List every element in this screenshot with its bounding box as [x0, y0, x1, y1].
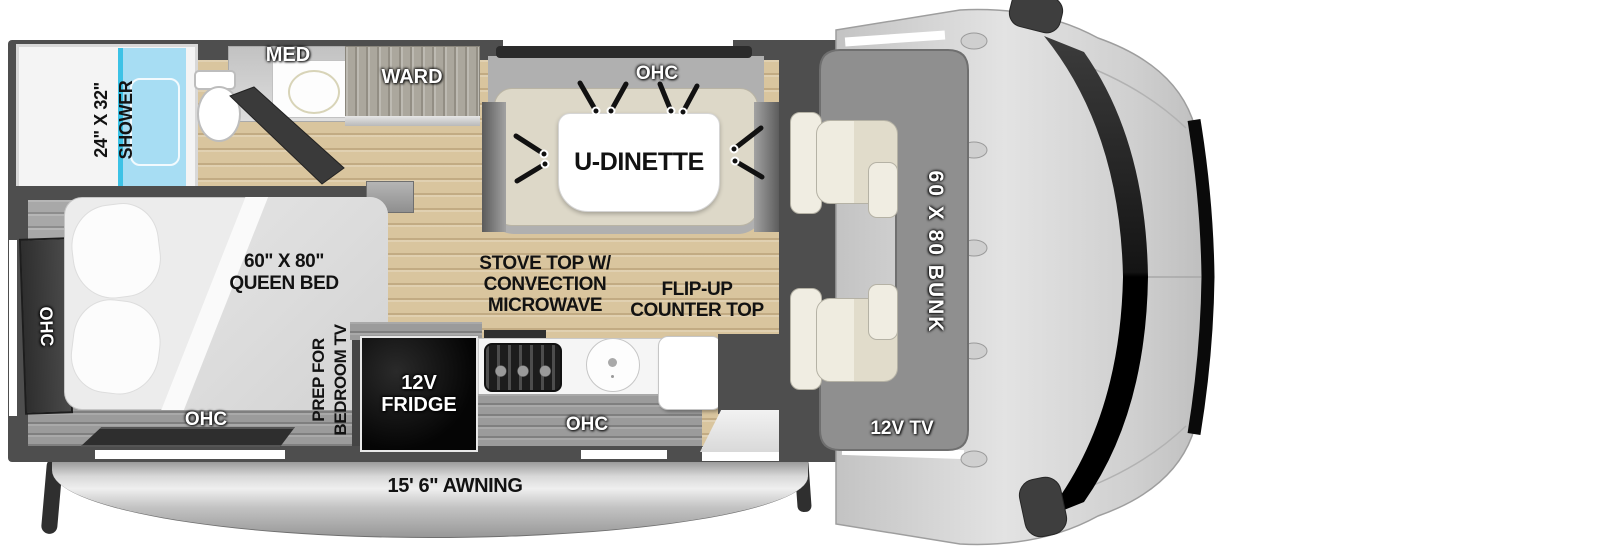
rear-side-window: [9, 240, 17, 416]
cab-and-bunk: [0, 0, 1600, 554]
driver-seat-armrest: [868, 284, 898, 340]
dinette-top-window: [503, 38, 733, 46]
kitchen-window: [581, 450, 667, 459]
bunk-label: 60 X 80 BUNK: [914, 67, 956, 437]
bedroom-window: [95, 450, 285, 459]
passenger-seat-armrest: [868, 162, 898, 218]
rv-floorplan: 15' 6" AWNING 24" X 32" SHOWER MED WARD …: [0, 0, 1600, 554]
cab-tv-label: 12V TV: [858, 418, 946, 440]
